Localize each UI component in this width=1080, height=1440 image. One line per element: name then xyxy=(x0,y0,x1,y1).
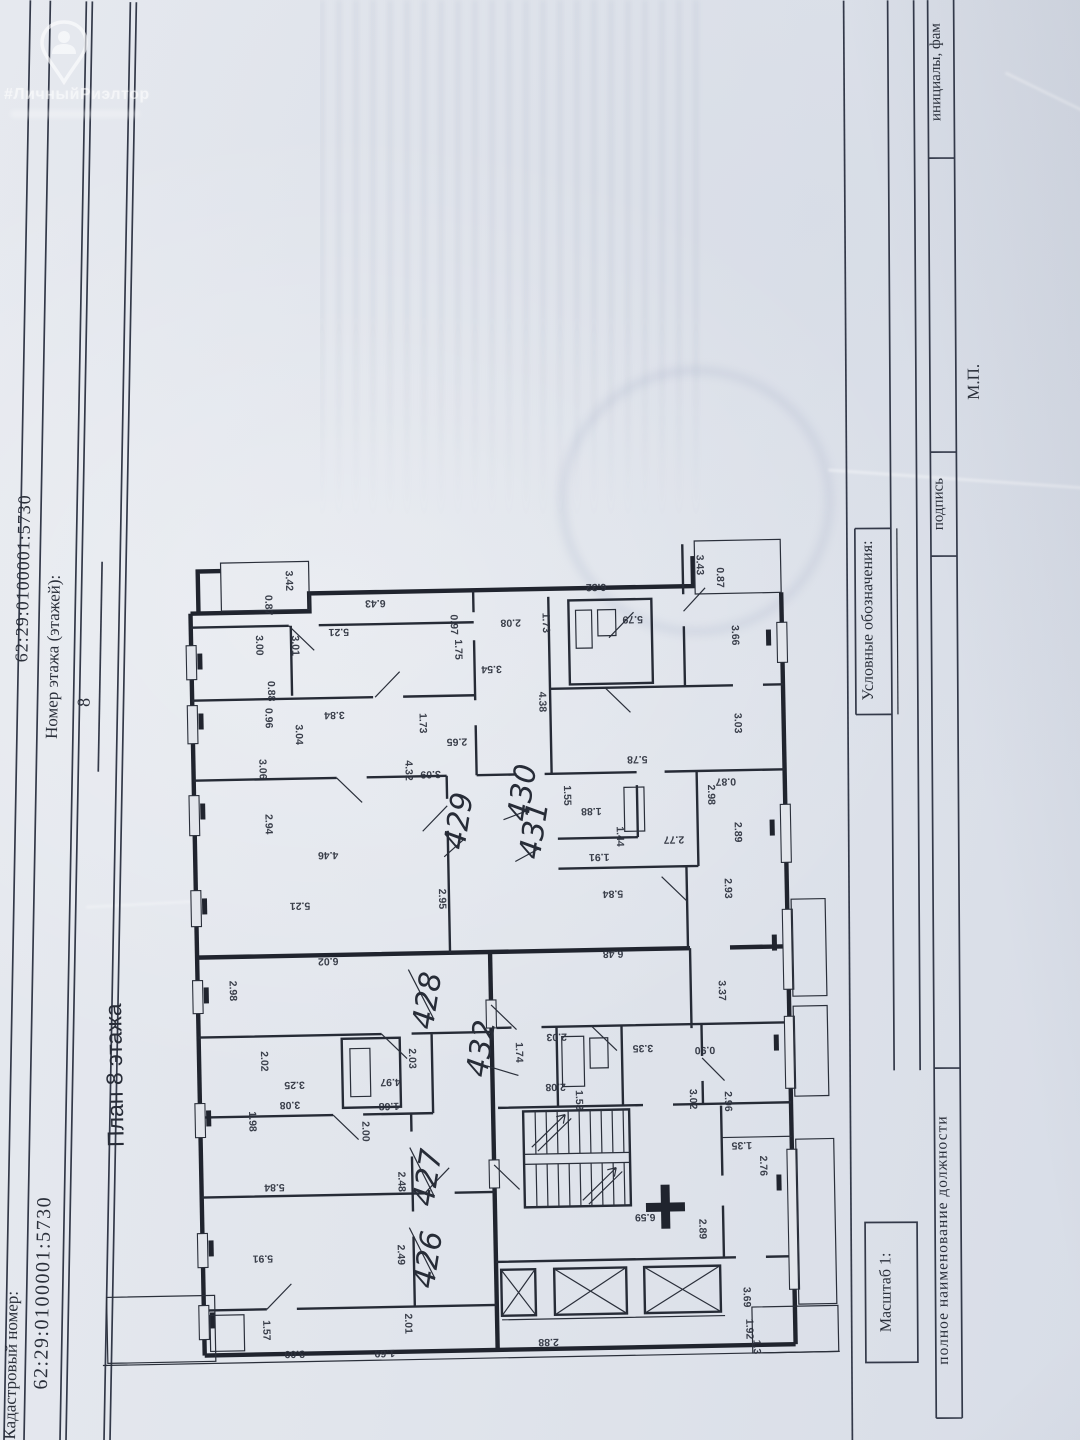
dimension-label: 3.03 xyxy=(731,713,743,734)
apartment-number: 429 xyxy=(437,790,480,852)
dimension-label: 3.08 xyxy=(279,1099,300,1111)
stamp-label: М.П. xyxy=(964,364,983,400)
dimension-label: 5.79 xyxy=(622,613,643,625)
dimension-label: 6.59 xyxy=(635,1211,656,1223)
dimension-label: 2.03 xyxy=(406,1048,418,1069)
dimension-label: 3.84 xyxy=(324,709,345,721)
position-cell-label: полное наименование должности xyxy=(933,1115,952,1364)
dimension-label: 3.09 xyxy=(420,768,441,780)
scale-label: Масштаб 1: xyxy=(877,1253,894,1333)
dimension-label: 6.32 xyxy=(586,581,607,593)
dimension-label: 2.77 xyxy=(663,833,684,845)
cadastral-number-value: 62:29:0100001:5730 xyxy=(30,1196,56,1390)
dimension-label: 3.35 xyxy=(632,1042,653,1054)
dimension-label: 3.04 xyxy=(293,724,305,745)
dimension-label: 0.88 xyxy=(265,681,277,702)
dimension-label: 2.65 xyxy=(447,735,468,747)
dimension-label: 5.78 xyxy=(627,753,648,765)
dimension-label: 5.84 xyxy=(602,887,623,899)
initials-cell-label: инициалы, фам xyxy=(928,23,945,121)
dimension-label: 3.00 xyxy=(253,635,265,656)
dimension-label: 2.95 xyxy=(436,889,448,910)
dimension-label: 2.96 xyxy=(722,1091,734,1112)
interior-walls xyxy=(189,542,795,1321)
dimension-label: 0.97 xyxy=(448,614,460,635)
dimension-label: 2.88 xyxy=(538,1336,559,1348)
header-table: Кадастровый номер: 62:29:0100001:5730 62… xyxy=(0,0,136,1440)
dimension-label: 2.89 xyxy=(696,1219,708,1240)
dimension-label: 1.74 xyxy=(513,1042,525,1063)
dimension-label: 0.96 xyxy=(262,708,274,729)
realtor-watermark-text: #ЛичныйРиэлтор xyxy=(4,86,174,104)
dimension-label: 6.48 xyxy=(603,947,624,959)
signature-cell-label: подпись xyxy=(931,478,947,531)
apartment-number: 432 xyxy=(460,1018,503,1080)
dimension-label: 1.92 xyxy=(743,1319,755,1340)
dimension-label: 1.73 xyxy=(416,713,428,734)
dimension-label: 0.87 xyxy=(715,775,736,787)
dimension-label: 4.38 xyxy=(536,692,548,713)
staircase xyxy=(523,1109,631,1207)
dimension-label: 5.91 xyxy=(252,1252,273,1264)
dimension-label: 5.21 xyxy=(290,899,311,911)
dimension-label: 1.75 xyxy=(452,639,464,660)
dimension-label: 4.46 xyxy=(318,849,339,861)
dimension-label: 2.93 xyxy=(722,878,734,899)
dimension-label: 3.25 xyxy=(284,1079,305,1091)
cadastral-number-value-top: 62:29:0100001:5730 xyxy=(11,494,34,662)
dimension-label: 1.98 xyxy=(246,1111,258,1132)
dimension-label: 3.09 xyxy=(284,1348,305,1360)
dimension-label: 3.43 xyxy=(693,555,705,576)
dimension-label: 1.3 xyxy=(751,1340,763,1355)
dimension-label: 1.69 xyxy=(374,1347,395,1359)
dimension-label: 2.89 xyxy=(732,822,744,843)
dimension-label: 2.98 xyxy=(705,784,717,805)
apartment-number: 427 xyxy=(406,1147,449,1209)
apartment-number: 431 xyxy=(513,799,556,861)
dimension-label: 1.88 xyxy=(581,805,602,817)
realtor-watermark: #ЛичныйРиэлтор xyxy=(0,14,180,134)
dimension-label: 2.98 xyxy=(227,981,239,1002)
apartment-numbers: 426427428429430431432 xyxy=(397,761,566,1291)
dimension-label: 3.06 xyxy=(256,759,268,780)
apartment-number: 428 xyxy=(406,970,449,1032)
dimension-label: 3.69 xyxy=(741,1287,753,1308)
page-title: План 8 этажа xyxy=(100,1003,129,1147)
dimension-label: 1.35 xyxy=(731,1139,752,1151)
legend-label: Условные обозначения: xyxy=(859,540,877,700)
floor-plan: План 8 этажа xyxy=(87,539,839,1367)
dimension-label: 3.42 xyxy=(283,570,295,591)
dimension-label: 4.97 xyxy=(380,1076,401,1088)
realtor-watermark-tagline xyxy=(10,110,140,118)
dimension-label: 2.01 xyxy=(402,1313,414,1334)
dimension-label: 1.57 xyxy=(260,1320,272,1341)
dimension-label: 0.87 xyxy=(714,567,726,588)
dimension-label: 0.87 xyxy=(262,595,274,616)
document-ink: Кадастровый номер: 62:29:0100001:5730 62… xyxy=(0,0,1080,1440)
dimension-label: 3.02 xyxy=(687,1089,699,1110)
dimension-label: 2.00 xyxy=(359,1121,371,1142)
dimension-label: 6.43 xyxy=(365,597,386,609)
dimension-label: 1.68 xyxy=(378,1100,399,1112)
dimension-label: 2.02 xyxy=(258,1051,270,1072)
apartment-number: 426 xyxy=(407,1229,450,1291)
cadastral-number-label: Кадастровый номер: xyxy=(0,1291,22,1440)
dimension-label: 2.94 xyxy=(262,814,274,835)
realtor-pin-icon xyxy=(38,20,90,86)
dimension-label: 1.55 xyxy=(561,785,573,806)
dimension-label: 2.76 xyxy=(757,1155,769,1176)
dimension-label: 3.54 xyxy=(481,663,502,675)
dimension-label: 5.21 xyxy=(328,626,349,638)
dimension-label: 1.44 xyxy=(614,826,626,847)
dimension-label: 3.66 xyxy=(729,625,741,646)
dimension-label: 5.84 xyxy=(264,1181,285,1193)
dimension-label: 1.73 xyxy=(540,613,552,634)
dimension-label: 3.37 xyxy=(716,980,728,1001)
dimension-label: 2.03 xyxy=(546,1031,567,1043)
dimension-label: 6.02 xyxy=(318,955,339,967)
footer-block: Условные обозначения: Масштаб 1: инициал… xyxy=(844,0,990,1440)
dimension-label: 1.53 xyxy=(573,1090,585,1111)
dimension-label: 1.91 xyxy=(589,851,610,863)
photographed-floor-plan-document: Кадастровый номер: 62:29:0100001:5730 62… xyxy=(0,0,1080,1440)
dimension-label: 2.49 xyxy=(395,1244,407,1265)
floor-number-label: Номер этажа (этажей): xyxy=(42,575,64,740)
dimension-label: 2.48 xyxy=(395,1171,407,1192)
dimension-label: 2.08 xyxy=(545,1081,566,1093)
dimension-label: 4.32 xyxy=(402,760,414,781)
floor-number-value: 8 xyxy=(73,698,93,707)
dimension-label: 2.08 xyxy=(500,616,521,628)
dimension-label: 3.01 xyxy=(289,635,301,656)
dimension-label: 0.90 xyxy=(694,1044,715,1056)
